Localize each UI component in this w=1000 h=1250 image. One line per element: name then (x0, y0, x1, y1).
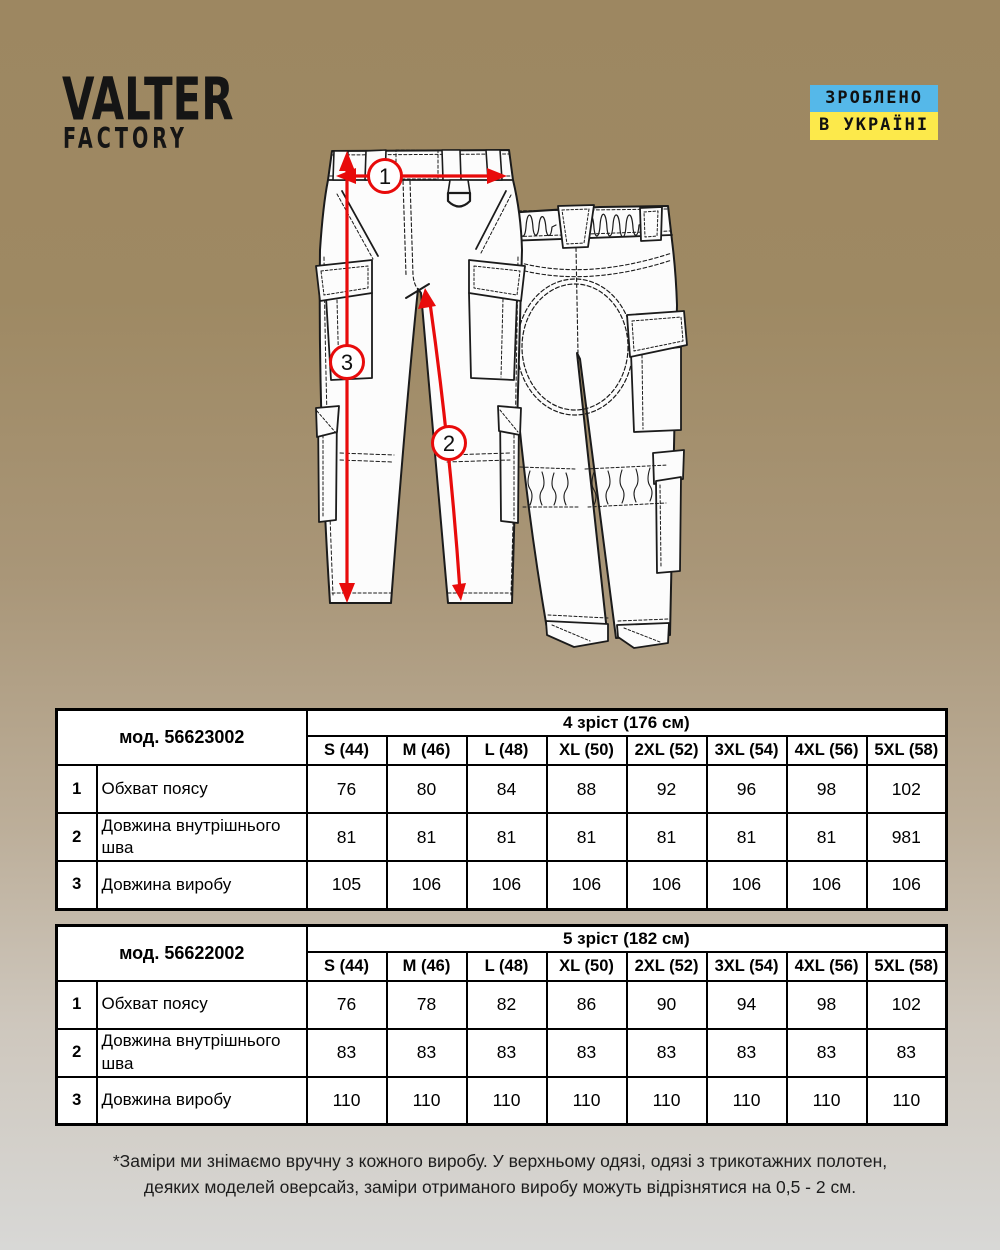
measurement-value-cell: 110 (787, 1077, 867, 1125)
brand-subtitle: FACTORY (63, 124, 188, 153)
size-header-cell: XL (50) (547, 952, 627, 981)
measure-marker-2: 2 (433, 427, 466, 460)
row-number-cell: 1 (57, 981, 97, 1029)
measurement-value-cell: 106 (387, 861, 467, 909)
measure-marker-1: 1 (369, 160, 402, 193)
measurement-value-cell: 98 (787, 765, 867, 813)
measurement-value-cell: 83 (467, 1029, 547, 1077)
measurement-disclaimer: *Заміри ми знімаємо вручну з кожного вир… (0, 1148, 1000, 1201)
measurement-value-cell: 94 (707, 981, 787, 1029)
measurement-value-cell: 106 (627, 861, 707, 909)
size-table-2-container: мод. 566220025 зріст (182 см)S (44)M (46… (55, 924, 945, 1127)
size-header-cell: 3XL (54) (707, 736, 787, 765)
measurement-value-cell: 81 (467, 813, 547, 861)
measurement-value-cell: 92 (627, 765, 707, 813)
pants-back-view (505, 205, 687, 648)
measurement-value-cell: 90 (627, 981, 707, 1029)
measurement-value-cell: 110 (867, 1077, 947, 1125)
measurement-value-cell: 82 (467, 981, 547, 1029)
measurement-row: 2Довжина внутрішнього шва838383838383838… (57, 1029, 947, 1077)
measurement-row: 2Довжина внутрішнього шва818181818181819… (57, 813, 947, 861)
size-header-cell: S (44) (307, 736, 387, 765)
measurement-value-cell: 83 (387, 1029, 467, 1077)
measurement-value-cell: 981 (867, 813, 947, 861)
measurement-label-cell: Обхват поясу (97, 981, 307, 1029)
measurement-value-cell: 106 (787, 861, 867, 909)
measurement-value-cell: 110 (467, 1077, 547, 1125)
measurement-value-cell: 83 (547, 1029, 627, 1077)
size-table-1: мод. 566230024 зріст (176 см)S (44)M (46… (55, 708, 948, 911)
size-header-cell: S (44) (307, 952, 387, 981)
made-in-ukraine-badge: ЗРОБЛЕНО В УКРАЇНІ (810, 85, 938, 140)
measurement-value-cell: 83 (627, 1029, 707, 1077)
measurement-value-cell: 84 (467, 765, 547, 813)
measurement-value-cell: 81 (307, 813, 387, 861)
measurement-value-cell: 81 (387, 813, 467, 861)
height-group-cell: 4 зріст (176 см) (307, 710, 947, 737)
disclaimer-line-1: *Заміри ми знімаємо вручну з кожного вир… (0, 1148, 1000, 1174)
size-table-2: мод. 566220025 зріст (182 см)S (44)M (46… (55, 924, 948, 1127)
measurement-value-cell: 110 (307, 1077, 387, 1125)
measure-marker-3: 3 (331, 346, 364, 379)
measurement-value-cell: 76 (307, 981, 387, 1029)
measurement-label-cell: Довжина внутрішнього шва (97, 1029, 307, 1077)
size-header-cell: 2XL (52) (627, 952, 707, 981)
svg-text:1: 1 (379, 164, 391, 189)
measurement-label-cell: Довжина виробу (97, 1077, 307, 1125)
svg-text:3: 3 (341, 350, 353, 375)
size-header-cell: 4XL (56) (787, 952, 867, 981)
measurement-value-cell: 83 (307, 1029, 387, 1077)
row-number-cell: 3 (57, 1077, 97, 1125)
measurement-value-cell: 76 (307, 765, 387, 813)
measurement-value-cell: 83 (867, 1029, 947, 1077)
measurement-label-cell: Обхват поясу (97, 765, 307, 813)
measurement-row: 3Довжина виробу110110110110110110110110 (57, 1077, 947, 1125)
size-header-cell: 5XL (58) (867, 952, 947, 981)
measurement-row: 1Обхват поясу76788286909498102 (57, 981, 947, 1029)
table-header-row-1: мод. 566230024 зріст (176 см) (57, 710, 947, 737)
row-number-cell: 3 (57, 861, 97, 909)
pants-technical-drawing: 1 2 3 (290, 135, 710, 675)
measurement-value-cell: 81 (787, 813, 867, 861)
measurement-value-cell: 86 (547, 981, 627, 1029)
badge-line-made: ЗРОБЛЕНО (810, 85, 938, 112)
row-number-cell: 1 (57, 765, 97, 813)
size-table-1-container: мод. 566230024 зріст (176 см)S (44)M (46… (55, 708, 945, 911)
height-group-cell: 5 зріст (182 см) (307, 925, 947, 952)
measurement-row: 1Обхват поясу76808488929698102 (57, 765, 947, 813)
measurement-value-cell: 88 (547, 765, 627, 813)
measurement-label-cell: Довжина внутрішнього шва (97, 813, 307, 861)
disclaimer-line-2: деяких моделей оверсайз, заміри отримано… (0, 1174, 1000, 1200)
measurement-value-cell: 110 (547, 1077, 627, 1125)
size-header-cell: 4XL (56) (787, 736, 867, 765)
table-header-row-1: мод. 566220025 зріст (182 см) (57, 925, 947, 952)
size-header-cell: M (46) (387, 952, 467, 981)
measurement-value-cell: 98 (787, 981, 867, 1029)
measurement-value-cell: 110 (627, 1077, 707, 1125)
measurement-value-cell: 106 (707, 861, 787, 909)
measurement-value-cell: 106 (467, 861, 547, 909)
measurement-label-cell: Довжина виробу (97, 861, 307, 909)
brand-name: VALTER (62, 70, 234, 129)
measurement-value-cell: 81 (547, 813, 627, 861)
measurement-value-cell: 81 (627, 813, 707, 861)
row-number-cell: 2 (57, 813, 97, 861)
size-header-cell: M (46) (387, 736, 467, 765)
size-header-cell: 5XL (58) (867, 736, 947, 765)
measurement-value-cell: 110 (707, 1077, 787, 1125)
size-header-cell: L (48) (467, 952, 547, 981)
measurement-value-cell: 83 (787, 1029, 867, 1077)
svg-text:2: 2 (443, 431, 455, 456)
size-header-cell: 2XL (52) (627, 736, 707, 765)
measurement-value-cell: 106 (867, 861, 947, 909)
measurement-value-cell: 105 (307, 861, 387, 909)
measurement-value-cell: 78 (387, 981, 467, 1029)
size-header-cell: XL (50) (547, 736, 627, 765)
badge-line-country: В УКРАЇНІ (810, 112, 938, 139)
size-header-cell: L (48) (467, 736, 547, 765)
page-background: VALTER FACTORY ЗРОБЛЕНО В УКРАЇНІ (0, 0, 1000, 1250)
model-number-cell: мод. 56623002 (57, 710, 307, 766)
measurement-value-cell: 106 (547, 861, 627, 909)
measurement-value-cell: 83 (707, 1029, 787, 1077)
measurement-row: 3Довжина виробу105106106106106106106106 (57, 861, 947, 909)
row-number-cell: 2 (57, 1029, 97, 1077)
size-tables: мод. 566230024 зріст (176 см)S (44)M (46… (55, 708, 945, 1126)
model-number-cell: мод. 56622002 (57, 925, 307, 981)
measurement-value-cell: 81 (707, 813, 787, 861)
measurement-value-cell: 80 (387, 765, 467, 813)
measurement-value-cell: 96 (707, 765, 787, 813)
measurement-value-cell: 102 (867, 765, 947, 813)
size-header-cell: 3XL (54) (707, 952, 787, 981)
measurement-value-cell: 110 (387, 1077, 467, 1125)
measurement-value-cell: 102 (867, 981, 947, 1029)
